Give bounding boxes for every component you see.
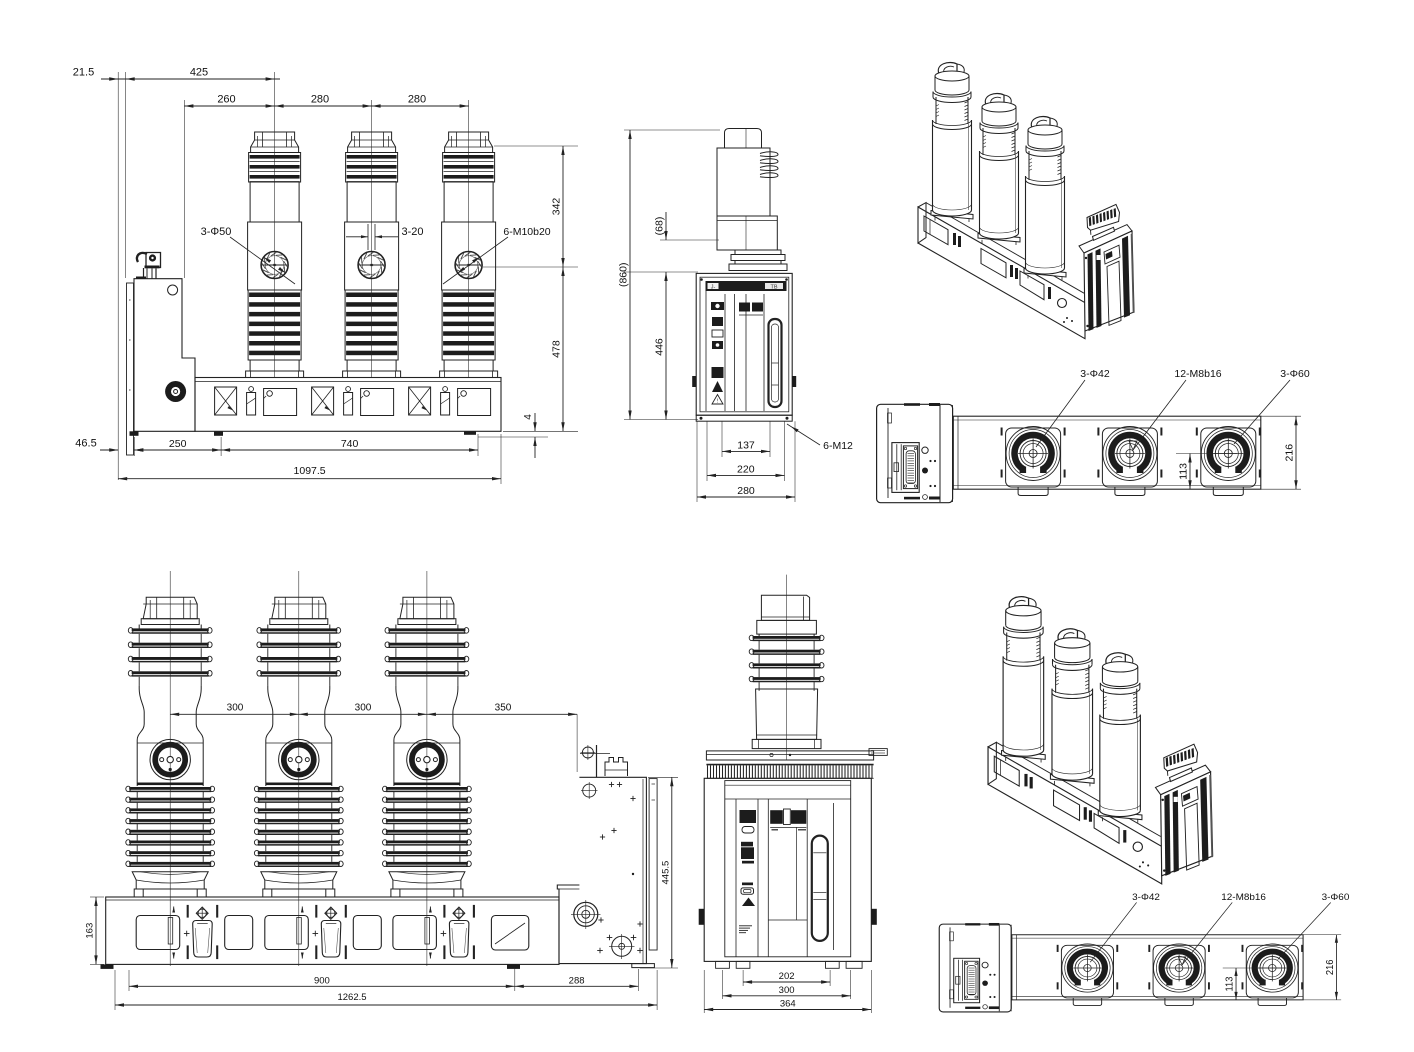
svg-text:1097.5: 1097.5 — [294, 465, 326, 477]
svg-text:202: 202 — [779, 971, 795, 982]
svg-text:280: 280 — [408, 94, 426, 106]
svg-text:342: 342 — [551, 198, 563, 216]
svg-text:300: 300 — [355, 703, 372, 714]
svg-text:1262.5: 1262.5 — [337, 992, 366, 1003]
svg-text:137: 137 — [737, 439, 755, 451]
svg-text:113: 113 — [1178, 463, 1190, 480]
svg-text:250: 250 — [169, 438, 187, 450]
svg-text:220: 220 — [737, 463, 755, 475]
svg-text:350: 350 — [495, 703, 512, 714]
svg-text:3-20: 3-20 — [401, 226, 423, 238]
svg-text:(68): (68) — [654, 217, 666, 236]
svg-text:4: 4 — [523, 414, 534, 420]
svg-text:364: 364 — [780, 999, 796, 1010]
svg-text:446: 446 — [654, 338, 666, 356]
svg-text:6-M10b20: 6-M10b20 — [503, 226, 550, 238]
svg-text:TB: TB — [770, 284, 777, 290]
svg-text:3-Φ50: 3-Φ50 — [201, 226, 232, 238]
svg-text:260: 260 — [217, 94, 235, 106]
svg-text:(860): (860) — [618, 263, 630, 288]
svg-text:280: 280 — [311, 94, 329, 106]
svg-text:900: 900 — [314, 975, 330, 986]
svg-text:J-: J- — [711, 284, 716, 290]
svg-text:216: 216 — [1284, 444, 1296, 462]
svg-text:6-M12: 6-M12 — [823, 440, 853, 452]
svg-text:300: 300 — [779, 985, 795, 996]
svg-text:21.5: 21.5 — [73, 67, 94, 79]
svg-text:46.5: 46.5 — [75, 438, 96, 450]
svg-text:!: ! — [717, 399, 718, 405]
svg-text:12-M8b16: 12-M8b16 — [1174, 368, 1221, 380]
svg-text:445.5: 445.5 — [660, 861, 671, 885]
svg-text:280: 280 — [737, 485, 755, 497]
svg-text:163: 163 — [85, 923, 96, 939]
svg-text:3-Φ42: 3-Φ42 — [1080, 368, 1110, 380]
svg-text:478: 478 — [551, 340, 563, 358]
svg-text:3-Φ60: 3-Φ60 — [1280, 368, 1310, 380]
svg-text:740: 740 — [341, 438, 359, 450]
svg-text:288: 288 — [569, 975, 585, 986]
svg-text:300: 300 — [227, 703, 244, 714]
svg-text:425: 425 — [190, 67, 208, 79]
